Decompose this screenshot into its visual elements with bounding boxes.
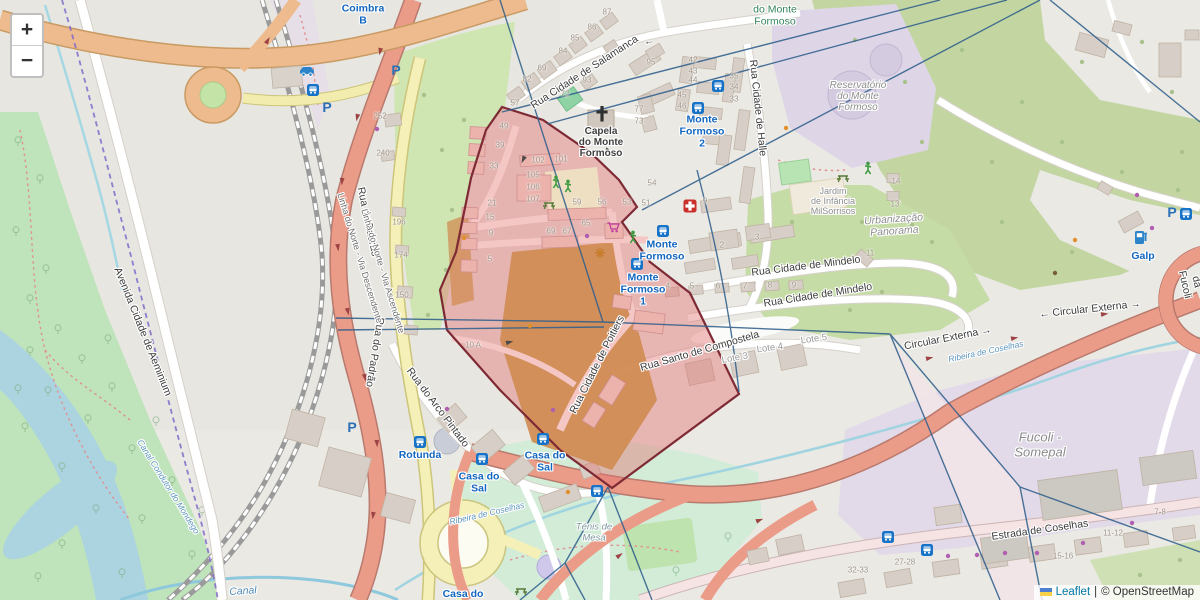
bus-stop-icon: [657, 225, 669, 237]
pharmacy-icon: [684, 200, 697, 213]
bus-stop-icon: [712, 80, 724, 92]
bus-stop-icon: [882, 531, 894, 543]
zoom-control: + −: [10, 13, 44, 78]
parking-icon: [1167, 204, 1176, 220]
map-tiles: P: [0, 0, 1200, 600]
reservoir-tank-1: [828, 71, 876, 119]
bus-stop-icon: [921, 544, 933, 556]
bus-stop-icon: [692, 102, 704, 114]
bus-stop-icon: [414, 436, 426, 448]
reservoir-tank-2: [870, 44, 902, 76]
garden-flower-icon: [595, 248, 605, 258]
parking-icon: [391, 62, 400, 78]
playground-area: [779, 159, 812, 185]
attribution-bar: Leaflet | © OpenStreetMap: [1034, 585, 1200, 600]
attribution-separator: |: [1094, 586, 1097, 598]
parking-icon: [322, 99, 331, 115]
bus-stop-icon: [631, 258, 643, 270]
leaflet-link[interactable]: Leaflet: [1056, 586, 1091, 598]
bus-stop-icon: [476, 453, 488, 465]
bus-stop-icon: [1180, 208, 1192, 220]
zoom-in-button[interactable]: +: [12, 15, 42, 46]
openstreetmap-link[interactable]: © OpenStreetMap: [1101, 586, 1194, 598]
parking-icon: [347, 419, 356, 435]
zoom-out-button[interactable]: −: [12, 46, 42, 76]
bus-stop-icon: [307, 84, 319, 96]
bus-stop-icon: [591, 485, 603, 497]
bus-stop-icon: [537, 433, 549, 445]
map-canvas[interactable]: P: [0, 0, 1200, 600]
ukraine-flag-icon: [1040, 588, 1052, 596]
